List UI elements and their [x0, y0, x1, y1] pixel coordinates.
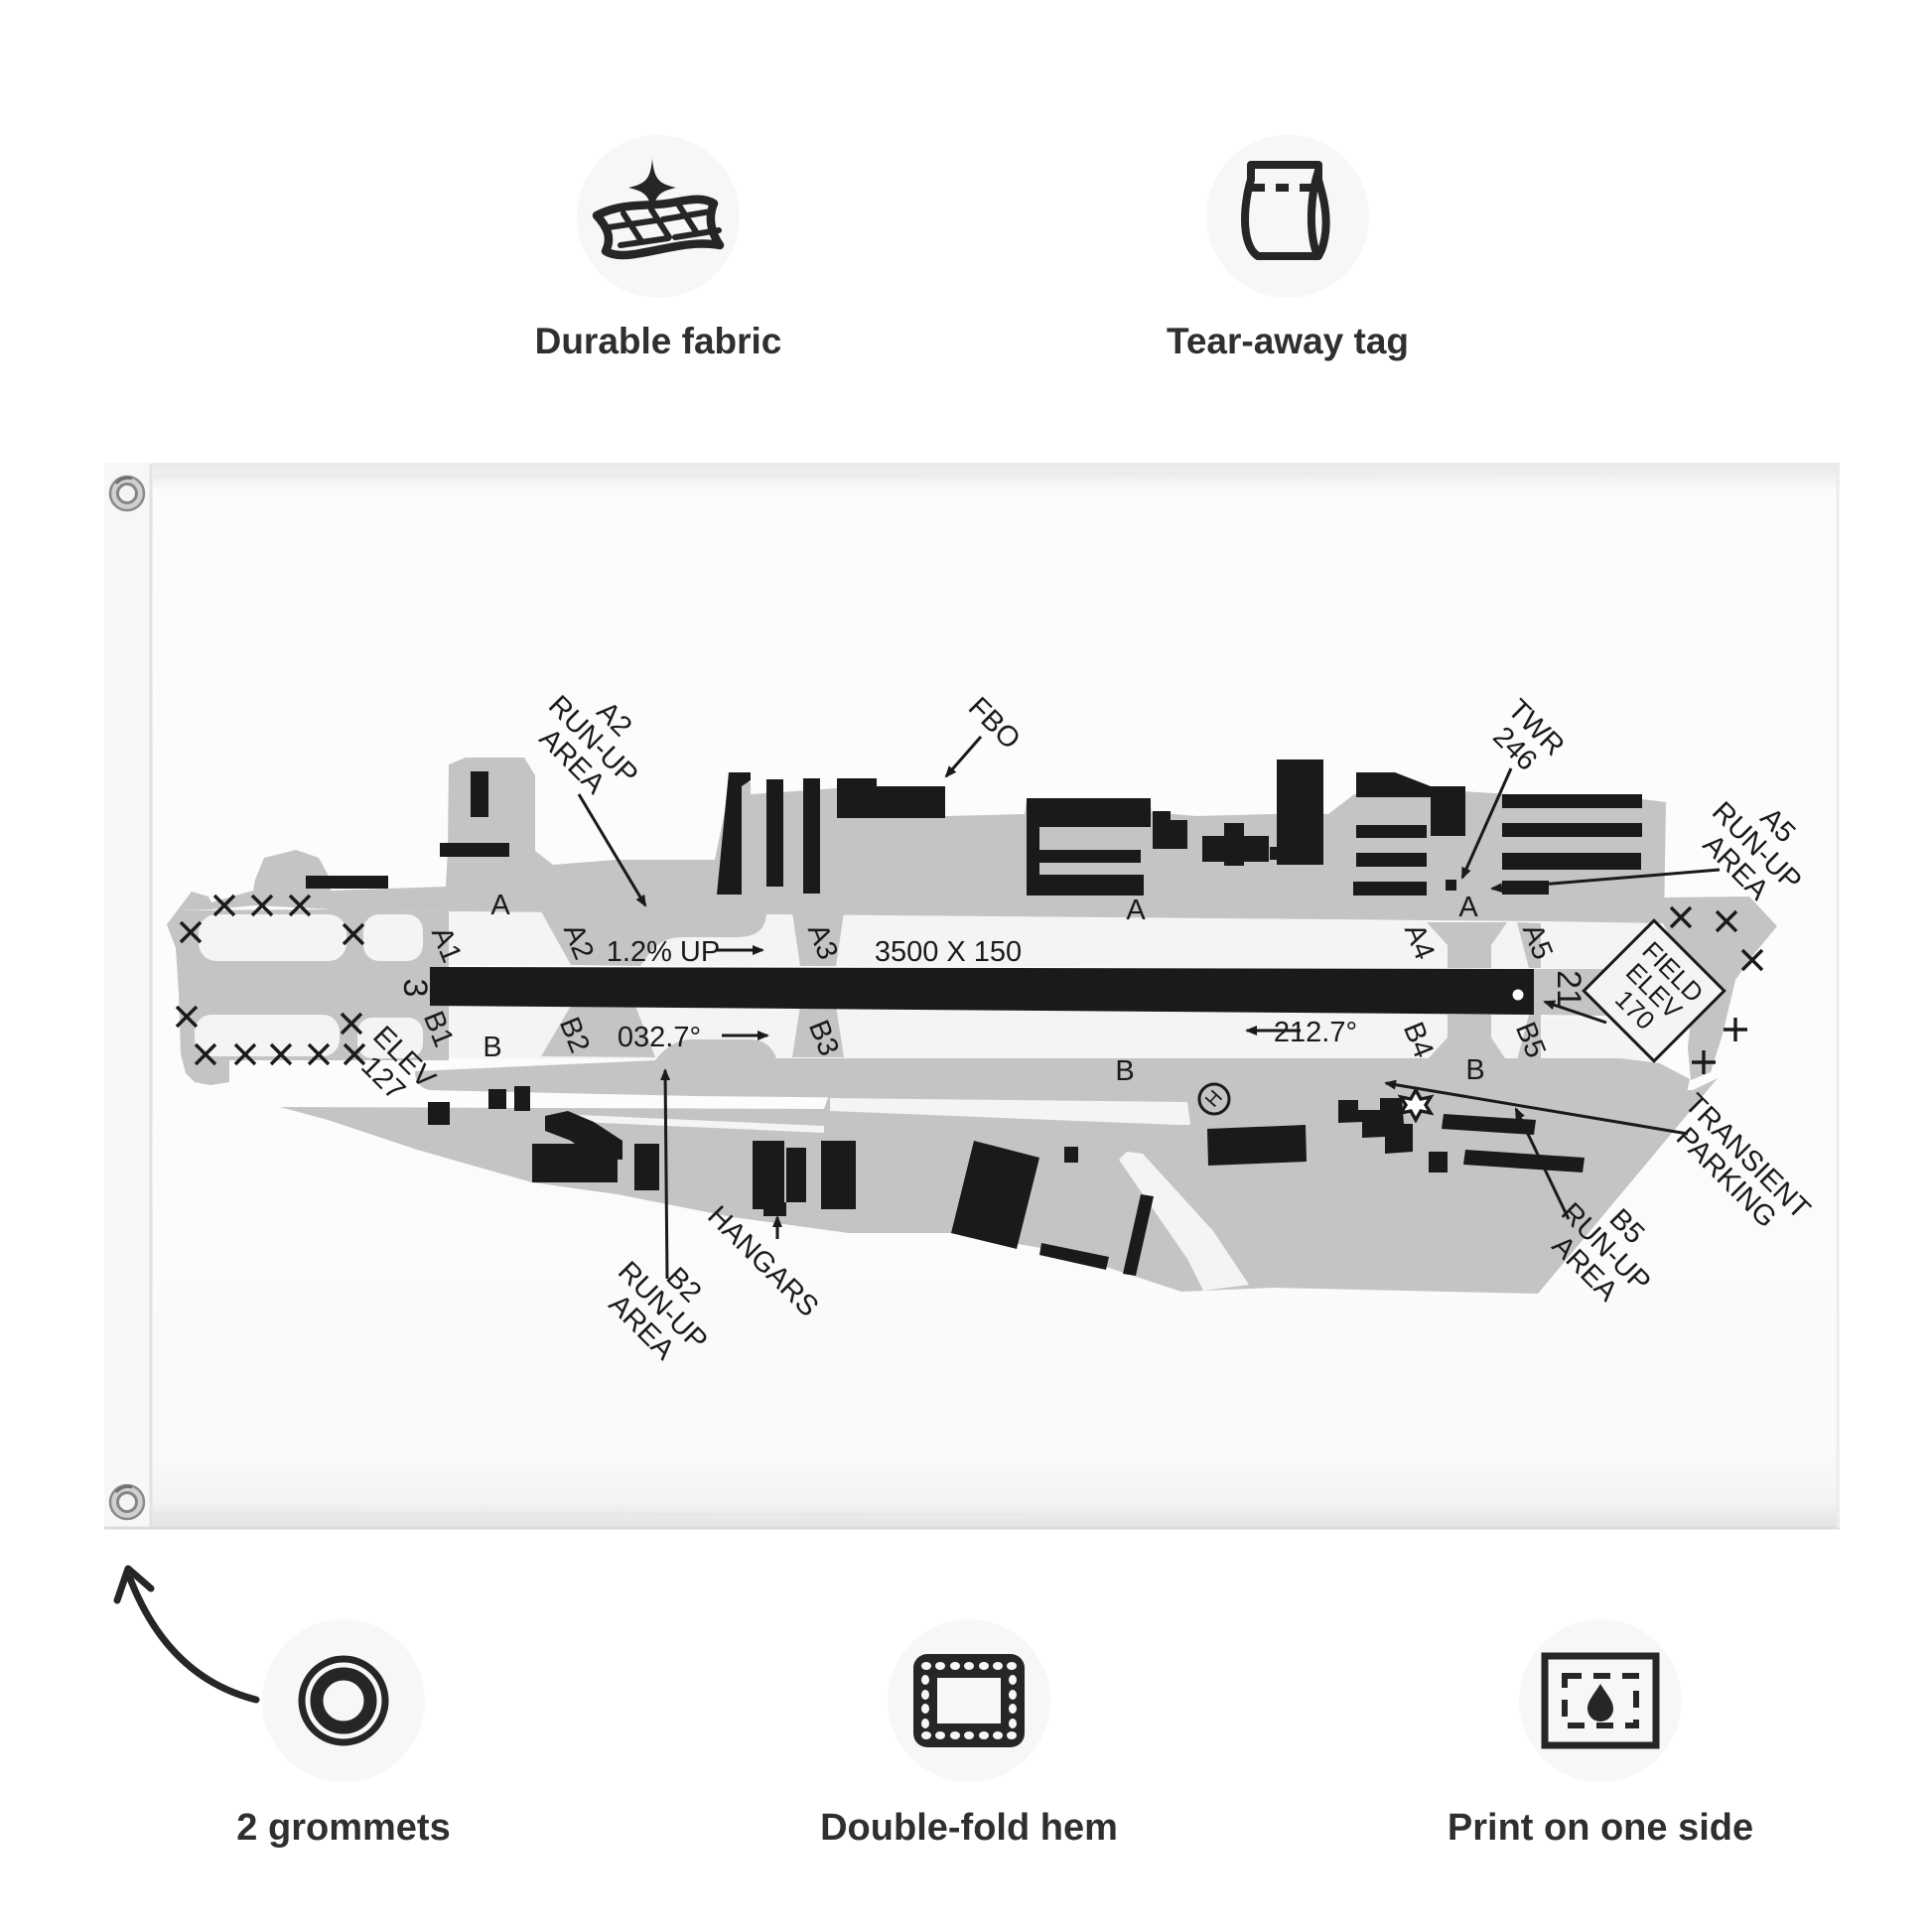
svg-text:A: A [490, 890, 510, 921]
svg-text:Print on one side: Print on one side [1448, 1807, 1753, 1849]
svg-text:Tear-away tag: Tear-away tag [1167, 321, 1409, 361]
svg-text:Durable fabric: Durable fabric [535, 321, 782, 361]
svg-text:A: A [1126, 895, 1146, 926]
svg-text:1.2% UP: 1.2% UP [607, 936, 720, 968]
svg-text:B: B [483, 1032, 501, 1063]
svg-text:B: B [1115, 1055, 1134, 1087]
svg-text:Double-fold hem: Double-fold hem [820, 1807, 1118, 1849]
svg-text:B: B [1465, 1054, 1484, 1086]
svg-text:2 grommets: 2 grommets [236, 1807, 450, 1849]
svg-text:A: A [1458, 892, 1478, 923]
svg-text:212.7°: 212.7° [1274, 1017, 1357, 1048]
svg-text:3: 3 [396, 979, 434, 998]
svg-text:3500 X 150: 3500 X 150 [875, 936, 1022, 968]
svg-text:21: 21 [1550, 970, 1587, 1008]
svg-text:032.7°: 032.7° [618, 1022, 701, 1053]
